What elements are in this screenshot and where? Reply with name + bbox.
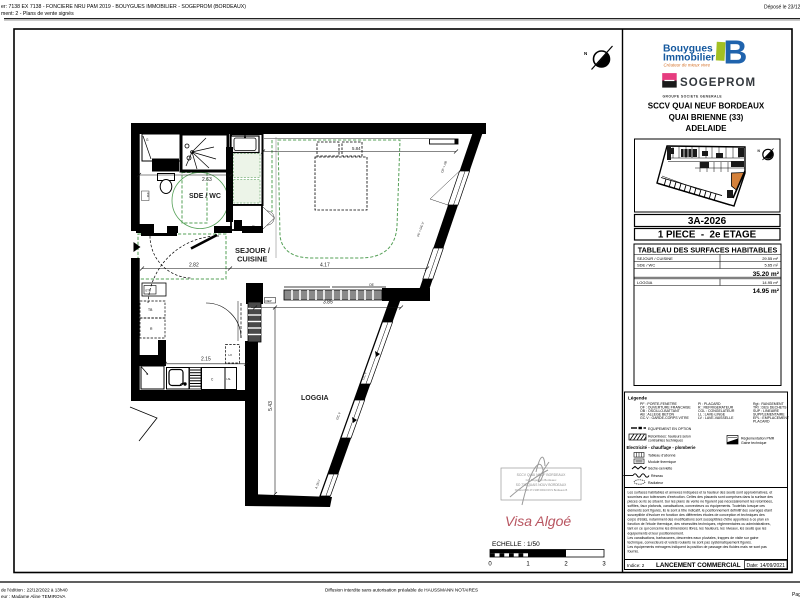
svg-text:Sèche-serviette: Sèche-serviette — [648, 467, 672, 471]
svg-text:5.43: 5.43 — [268, 401, 274, 411]
svg-text:29.55 m²: 29.55 m² — [762, 256, 778, 261]
svg-text:Les canalisations, barbacanes,: Les canalisations, barbacanes, descentes… — [628, 536, 759, 540]
svg-text:SEJOUR / CUISINE: SEJOUR / CUISINE — [637, 256, 673, 261]
svg-text:LANCEMENT COMMERCIAL: LANCEMENT COMMERCIAL — [656, 562, 741, 569]
svg-text:de l'édition : 22/12/2022 à 13: de l'édition : 22/12/2022 à 13h40 — [1, 588, 68, 593]
svg-text:2.63: 2.63 — [202, 177, 212, 183]
svg-text:ADELAIDE: ADELAIDE — [686, 124, 728, 133]
svg-text:Indice: 2: Indice: 2 — [627, 563, 645, 568]
svg-text:N: N — [584, 51, 587, 56]
svg-text:SDE / WC: SDE / WC — [189, 193, 221, 200]
svg-text:soumises aux tolérances d'exéc: soumises aux tolérances d'exécution. Cel… — [628, 495, 774, 499]
svg-text:SCCV QUAI NEUF BORDEAUX: SCCV QUAI NEUF BORDEAUX — [648, 102, 765, 111]
svg-text:éléments sont figurés, ils le: éléments sont figurés, ils le sont à tit… — [628, 509, 773, 513]
svg-text:1 PIECE - 2e ETAGE: 1 PIECE - 2e ETAGE — [658, 230, 757, 241]
svg-text:Page 1/1: Page 1/1 — [792, 592, 800, 598]
svg-text:Créateur de mieux vivre: Créateur de mieux vivre — [664, 63, 711, 68]
svg-text:CUISINE: CUISINE — [237, 255, 267, 264]
svg-text:DEP: DEP — [266, 299, 272, 303]
svg-text:OE: OE — [369, 283, 375, 287]
svg-text:TB: TB — [148, 308, 153, 312]
svg-text:susceptible d'évoluer en fonct: susceptible d'évoluer en fonction des di… — [628, 513, 765, 517]
svg-text:Déposé le 23/12: Déposé le 23/12 — [764, 5, 800, 11]
svg-text:4.17: 4.17 — [320, 263, 330, 269]
svg-text:LV : LAVE-VAISSELLE: LV : LAVE-VAISSELLE — [698, 416, 734, 420]
svg-text:GC.V : GARDE-CORPS VITRE: GC.V : GARDE-CORPS VITRE — [640, 416, 689, 420]
svg-text:14.95 m²: 14.95 m² — [762, 280, 778, 285]
svg-text:Module thermique: Module thermique — [648, 460, 676, 464]
svg-text:Légende: Légende — [628, 396, 647, 401]
svg-text:SOGEPROM: SOGEPROM — [680, 77, 756, 89]
svg-text:ment: 2 - Plans de vente signé: ment: 2 - Plans de vente signés — [1, 11, 74, 17]
svg-text:B: B — [724, 34, 748, 71]
svg-text:Tableau d'abonné: Tableau d'abonné — [648, 454, 676, 458]
svg-text:Date: 14/09/2021: Date: 14/09/2021 — [747, 563, 786, 569]
svg-text:Les surfaces habitables et ann: Les surfaces habitables et annexes indiq… — [628, 490, 773, 494]
svg-text:Réglementation PMR: Réglementation PMR — [741, 437, 775, 441]
svg-text:TABLEAU DES SURFACES HABITABLE: TABLEAU DES SURFACES HABITABLES — [638, 246, 778, 255]
svg-text:pièces où ils se situent. Sur: pièces où ils se situent. Sur les plans … — [628, 499, 774, 503]
svg-text:Réseau: Réseau — [651, 474, 663, 478]
svg-text:tant en ce qui concerne les di: tant en ce qui concerne les dimensions l… — [628, 527, 767, 531]
svg-text:équipements et leur positionne: équipements et leur positionnement. — [628, 531, 684, 535]
svg-text:EQUIPEMENT EN OPTION: EQUIPEMENT EN OPTION — [648, 427, 692, 431]
svg-text:SDE / WC: SDE / WC — [637, 263, 655, 268]
svg-text:corps d'états, notamment des m: corps d'états, notamment des modificatio… — [628, 518, 769, 522]
svg-text:N° Siret 899 471 908 00010 RCS: N° Siret 899 471 908 00010 RCS Bordeaux … — [515, 488, 568, 492]
svg-text:ECHELLE : 1/50: ECHELLE : 1/50 — [492, 541, 540, 548]
svg-text:GROUPE SOCIETE GENERALE: GROUPE SOCIETE GENERALE — [663, 95, 723, 99]
svg-text:contraintes techniques: contraintes techniques — [648, 439, 683, 443]
svg-text:Visa Algoé: Visa Algoé — [505, 513, 571, 529]
svg-text:Diffusion interdite sans autor: Diffusion interdite sans autorisation pr… — [325, 588, 478, 593]
svg-text:14.95 m²: 14.95 m² — [753, 288, 780, 295]
svg-text:Radiateur: Radiateur — [648, 481, 664, 485]
svg-text:PLACARD: PLACARD — [753, 420, 770, 424]
svg-text:LOGGIA: LOGGIA — [637, 280, 653, 285]
svg-text:Gaine technique: Gaine technique — [741, 441, 767, 445]
svg-text:5.84: 5.84 — [352, 146, 361, 151]
svg-text:fournis.: fournis. — [628, 549, 640, 553]
svg-text:2.15: 2.15 — [201, 357, 211, 363]
svg-text:fonction de l'étude thermique,: fonction de l'étude thermique, des néces… — [628, 522, 771, 526]
svg-text:LOGGIA: LOGGIA — [301, 395, 329, 402]
svg-text:3A-2026: 3A-2026 — [688, 216, 727, 227]
svg-text:LV: LV — [229, 353, 232, 357]
svg-text:3.85: 3.85 — [323, 300, 333, 306]
svg-text:LSL: LSL — [227, 378, 232, 381]
svg-text:Electricité - chauffage - plom: Electricité - chauffage - plomberie — [627, 445, 697, 450]
svg-text:35.20 m²: 35.20 m² — [753, 271, 780, 278]
svg-text:er: 7138 EX 7138 - FONCIERE NR: er: 7138 EX 7138 - FONCIERE NRU PAM 2019… — [1, 4, 246, 10]
svg-text:soffites, faux plafonds, canal: soffites, faux plafonds, canalisations, … — [628, 504, 766, 508]
svg-text:QUAI BRIENNE (33): QUAI BRIENNE (33) — [669, 113, 744, 122]
svg-text:NTA: NTA — [146, 193, 149, 198]
svg-text:5.65 m²: 5.65 m² — [764, 263, 778, 268]
svg-text:eur : Madame Aline TEMIROVA: eur : Madame Aline TEMIROVA — [1, 594, 66, 599]
svg-text:Les équipements ménagers indiq: Les équipements ménagers indiquent la po… — [628, 545, 768, 549]
svg-text:2.82: 2.82 — [189, 263, 199, 269]
svg-text:technique, convecteurs et vole: technique, convecteurs et volets roulant… — [628, 540, 752, 544]
